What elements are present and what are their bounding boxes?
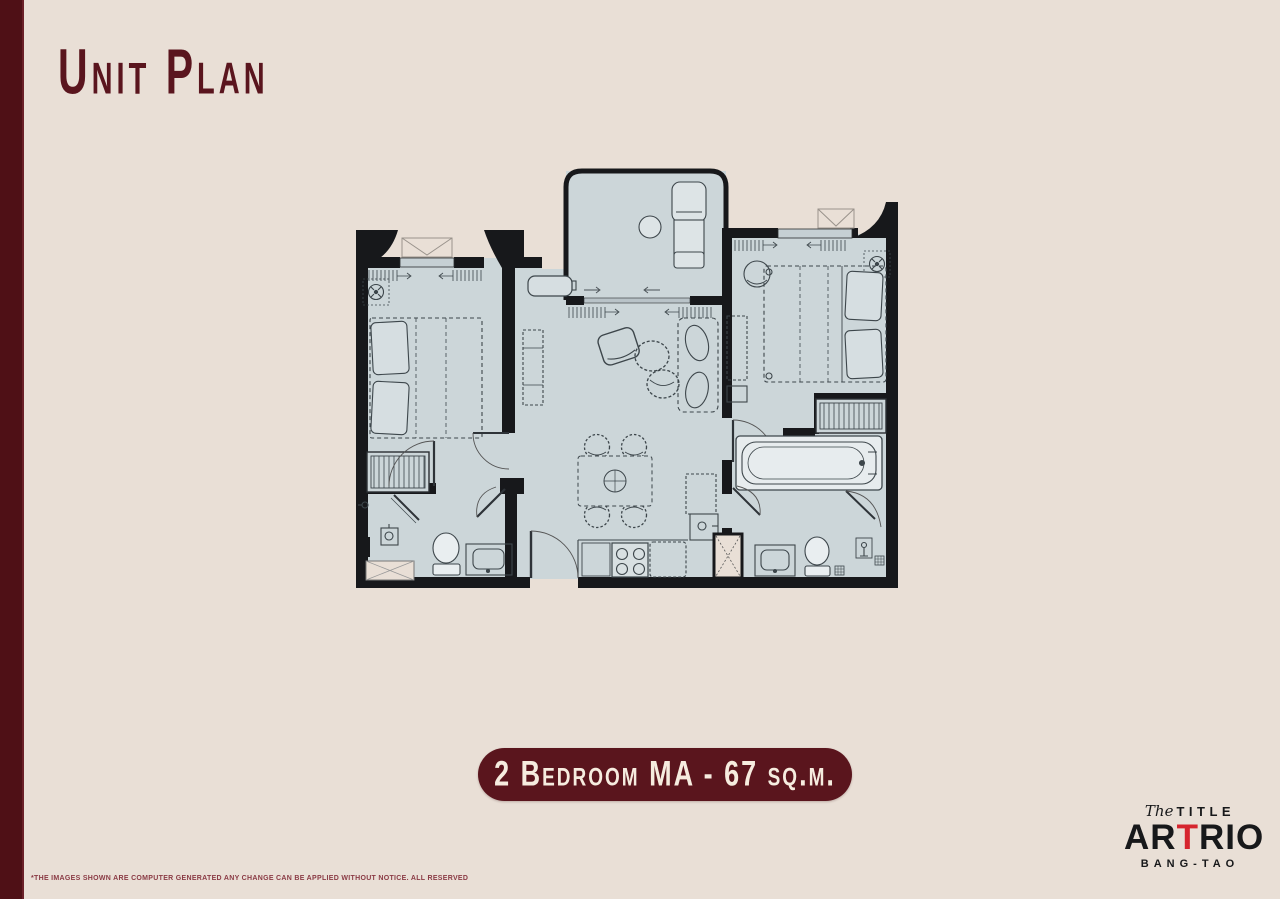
logo-brand-word: TITLE [1176, 805, 1235, 818]
logo-project-pre: AR [1124, 818, 1177, 857]
logo-project-name: ARTRIO [1124, 820, 1256, 855]
unit-type-label: 2 Bedroom MA - 67 sq.m. [494, 754, 836, 795]
logo-location: BANG-TAO [1124, 858, 1256, 870]
shaft [714, 534, 742, 578]
page-title: Unit Plan [58, 36, 269, 109]
logo-project-accent: T [1177, 818, 1199, 857]
brand-logo: The TITLE ARTRIO BANG-TAO [1124, 804, 1256, 870]
floor-plan-drawing [340, 150, 910, 595]
brand-logo-top: The TITLE [1124, 804, 1256, 819]
left-accent-bar [0, 0, 24, 899]
logo-project-post: RIO [1199, 818, 1264, 857]
logo-script-word: The [1145, 804, 1174, 819]
ac-ledge [366, 561, 414, 580]
unit-type-badge: 2 Bedroom MA - 67 sq.m. [478, 748, 852, 801]
disclaimer-text: *THE IMAGES SHOWN ARE COMPUTER GENERATED… [31, 875, 468, 882]
floor-plan [340, 150, 910, 595]
